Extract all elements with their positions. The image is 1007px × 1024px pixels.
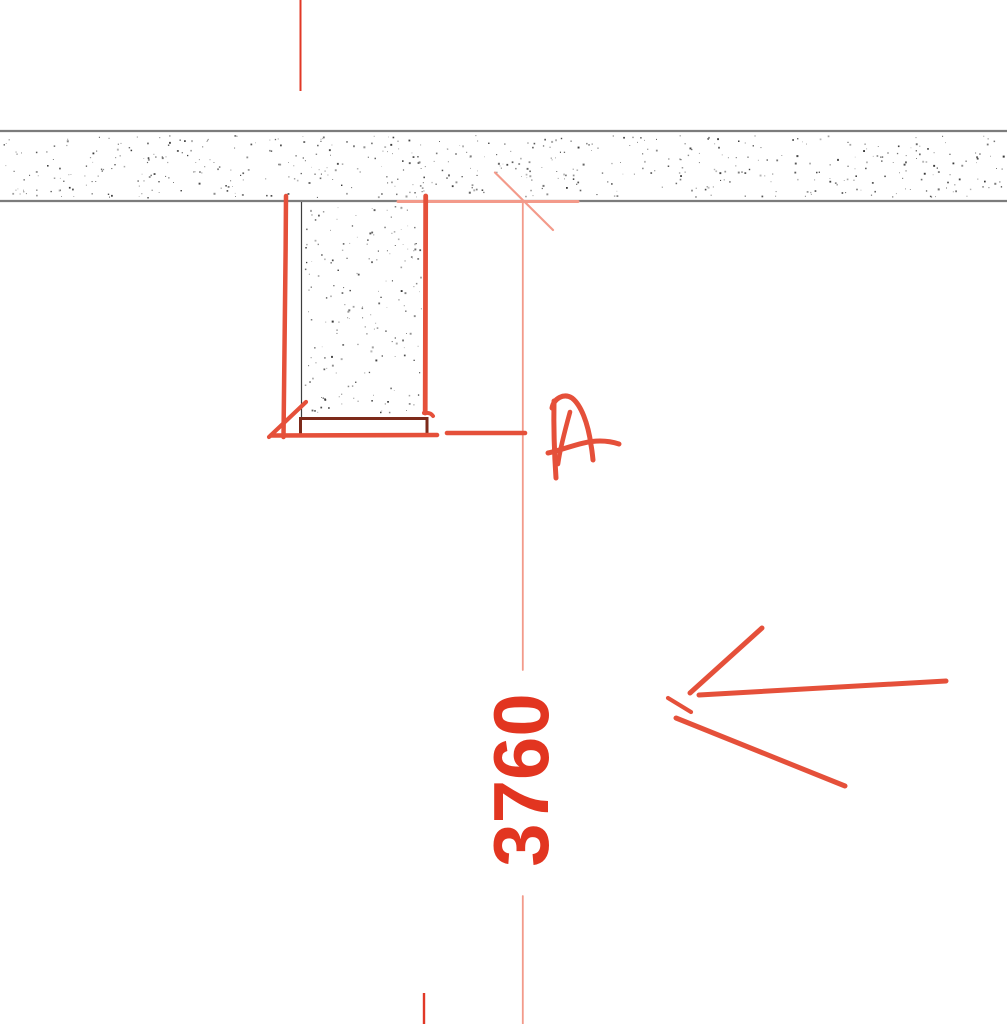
wall-stub-section (302, 202, 422, 417)
markup-stub-left-stroke[interactable] (284, 196, 287, 437)
letter-a-crossbar-stroke (548, 441, 619, 453)
arrow-upper-barb-stroke (690, 628, 762, 693)
markup-sill-hook-stroke[interactable] (424, 413, 433, 416)
red-markup-sketch[interactable] (269, 196, 946, 786)
slab-concrete-stipple (4, 135, 1005, 199)
letter-a-inner-stroke (558, 412, 570, 464)
markup-stub-right-stroke[interactable] (425, 196, 426, 413)
arrow-shaft-stroke (699, 681, 946, 695)
markup-stub-bottom-stroke[interactable] (271, 435, 437, 436)
window-sill-detail (301, 419, 428, 436)
arrow-tip-tick-stroke (668, 698, 691, 712)
arrow-lower-barb-stroke (676, 718, 845, 786)
sketch-arrow[interactable] (668, 628, 946, 786)
stub-concrete-stipple (305, 206, 422, 413)
handwritten-letter-a[interactable] (548, 396, 619, 478)
letter-a-left-stroke (554, 401, 556, 478)
slab-section (0, 131, 1007, 201)
plan-drawing (0, 0, 1007, 1024)
dimension-text[interactable]: 3760 (482, 693, 560, 867)
drawing-canvas[interactable]: 3760 A (0, 0, 1007, 1024)
